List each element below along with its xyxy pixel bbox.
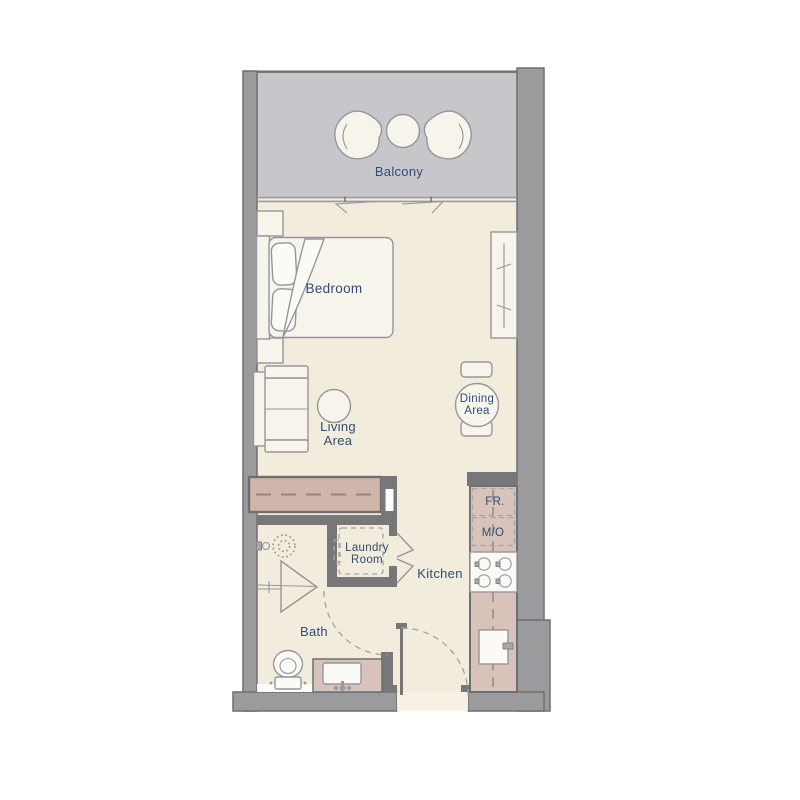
kitchen-fixtures: [470, 486, 517, 692]
laundry-right-wall-top-post: [389, 515, 397, 536]
bath-top-wall: [257, 515, 337, 525]
laundry-bottom-wall: [327, 577, 397, 587]
label-kitchen: Kitchen: [417, 566, 462, 581]
burner-3-knob: [475, 579, 479, 584]
burner-4-knob: [496, 579, 500, 584]
label-bedroom: Bedroom: [306, 281, 363, 296]
label-bath: Bath: [300, 624, 328, 639]
burner-2-knob: [496, 562, 500, 567]
toilet-bolt-right: [304, 682, 307, 685]
vanity-sink: [323, 663, 361, 684]
floor-plan: Balcony Bedroom Living Area Dining Area …: [0, 0, 800, 800]
label-dining-line1: Dining: [460, 393, 494, 405]
shower-head-icon: [257, 542, 262, 550]
balcony-table: [387, 115, 420, 148]
nightstand-top: [257, 211, 283, 236]
dining-chair-top: [461, 362, 492, 377]
lounge-chair-left: [335, 111, 382, 159]
vanity: [313, 659, 382, 692]
laundry-top-wall: [327, 515, 397, 525]
wardrobe: [491, 232, 517, 338]
sofa-armrest-bottom: [265, 440, 308, 452]
kitchen-sink: [479, 630, 513, 664]
label-laundry-line2: Room: [351, 554, 383, 566]
sink-faucet: [503, 643, 513, 649]
balcony-rail: [255, 71, 517, 73]
bed-headboard: [257, 236, 270, 339]
closet-wall-opening: [386, 489, 394, 511]
pillow-top: [271, 242, 297, 285]
kitchen-dining-wall-stub: [467, 472, 517, 486]
floor-plan-canvas: Balcony Bedroom Living Area Dining Area …: [0, 0, 800, 800]
entry-threshold: [397, 692, 468, 711]
label-laundry-line1: Laundry: [345, 542, 389, 554]
label-living-line1: Living: [320, 419, 356, 434]
sofa: [254, 366, 309, 452]
lounge-chair-right: [424, 111, 471, 159]
label-living-line2: Area: [324, 433, 353, 448]
coffee-table: [318, 390, 351, 423]
exterior-wall-bottom-left: [233, 692, 397, 711]
label-balcony: Balcony: [375, 164, 424, 179]
label-dining-line2: Area: [464, 405, 490, 417]
nightstand-bottom: [257, 338, 283, 363]
bath-laundry-divider-wall: [327, 515, 337, 587]
burner-1-knob: [475, 562, 479, 567]
vanity-faucet-dot-center: [340, 685, 346, 691]
toilet-tank: [275, 677, 301, 689]
label-microwave-oven: M/O: [482, 527, 505, 539]
sofa-backrest: [254, 372, 266, 446]
sofa-armrest-top: [265, 366, 308, 378]
stove: [470, 552, 517, 592]
closet: [249, 476, 397, 517]
toilet-bolt-left: [270, 682, 273, 685]
vanity-faucet-dot-right: [347, 686, 351, 690]
label-fridge: FR.: [485, 496, 504, 508]
entry-jamb-left: [389, 685, 397, 692]
stove-body: [470, 552, 517, 592]
vanity-faucet-dot-left: [334, 686, 338, 690]
exterior-wall-bottom-right: [468, 692, 544, 711]
exterior-wall-right-upper: [517, 68, 544, 620]
